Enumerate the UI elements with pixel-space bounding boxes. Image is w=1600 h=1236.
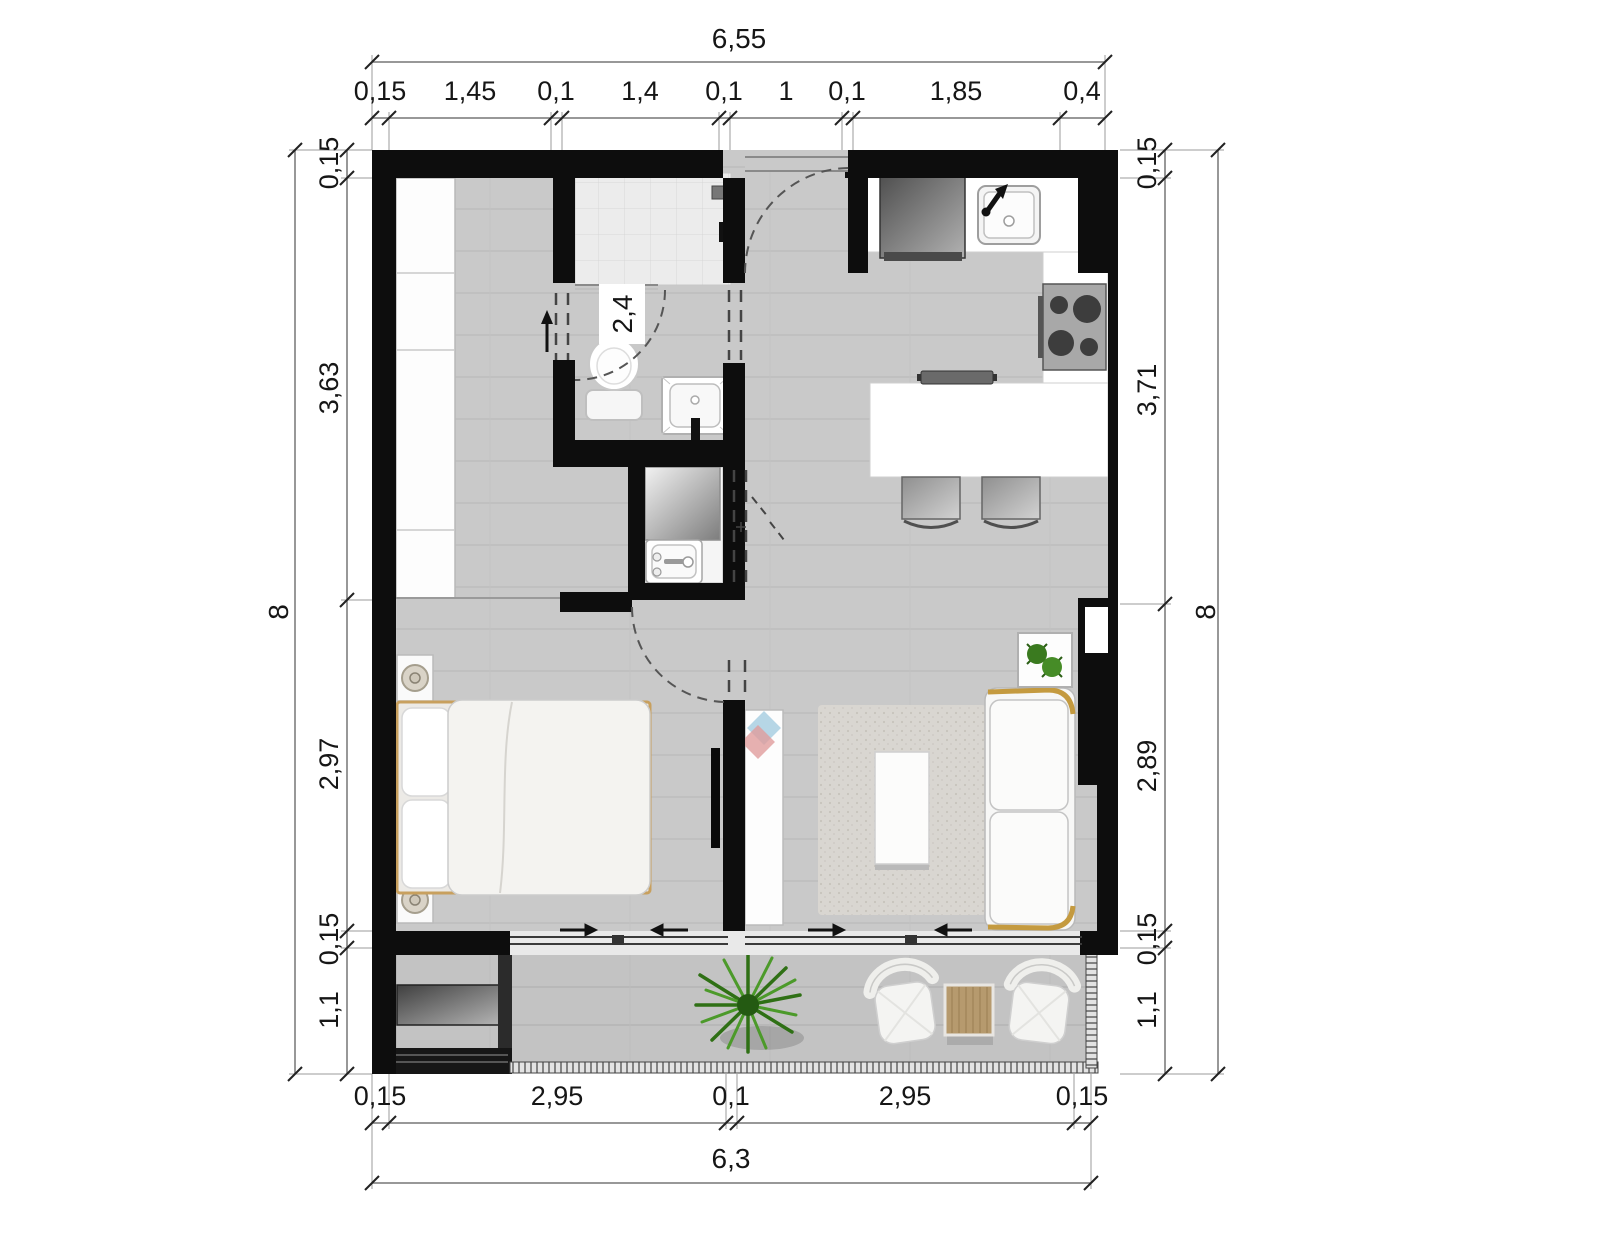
utility-closet [645,467,723,583]
refrigerator-handle [884,252,962,261]
dim-left-seg: 1,1 [314,991,344,1029]
dim-top-seg: 0,1 [705,76,743,106]
plant-stand-icon [1018,633,1072,687]
bathroom-wall-left-upper [553,178,575,283]
shower-floor-tiles [575,173,731,285]
dim-right-overall: 8 [1190,604,1221,620]
exterior-wall-slider-end [1080,931,1118,955]
dim-top-seg: 1,4 [621,76,659,106]
balcony-wall-left [372,948,396,1074]
double-bed-icon [397,700,650,895]
bedroom-balcony-wall [372,931,510,955]
washbasin-icon [662,377,728,442]
entry-threshold [745,150,848,172]
sliding-door-meeting-stile [612,935,624,945]
dim-bottom-seg: 0,15 [354,1081,407,1111]
cooktop-icon [1038,284,1106,370]
dim-bottom-seg: 2,95 [531,1081,584,1111]
utility-wall-left [628,467,645,600]
nightstand-icon [397,655,433,701]
mirror-panel [645,467,720,540]
bathroom-wall-right-upper [723,178,745,283]
sofa-icon [985,688,1075,930]
utility-wall-bottom [628,583,745,600]
kitchen-entry-wall [848,178,868,273]
exterior-wall-left [372,150,396,948]
dim-bottom-overall: 6,3 [712,1143,751,1174]
dim-bottom-seg: 2,95 [879,1081,932,1111]
balcony-railing [510,1062,1098,1073]
toilet-icon [586,338,642,420]
dim-top-seg: 0,4 [1063,76,1101,106]
sliding-door-meeting-stile [905,935,917,945]
bathroom-wall-bottom [553,440,745,467]
island-counter [870,383,1108,477]
exterior-wall-right [1108,273,1118,598]
dim-right-seg: 1,1 [1132,991,1162,1029]
dim-left-seg: 0,15 [314,137,344,190]
outdoor-side-table-icon [945,985,993,1045]
tv-cabinet [741,710,783,925]
dim-top-seg: 0,15 [354,76,407,106]
bedroom-living-partition [723,700,745,948]
dim-right-seg: 0,15 [1132,137,1162,190]
dim-bottom-seg: 0,15 [1056,1081,1109,1111]
dim-top-seg: 0,1 [828,76,866,106]
dim-top-seg: 0,1 [537,76,575,106]
tv-icon [711,748,720,848]
duvet [448,700,650,895]
dim-right-seg: 0,15 [1132,913,1162,966]
laundry-sink-icon [646,540,702,583]
dim-left-seg: 2,97 [314,738,344,791]
ceiling-height-label: 2,4 [607,295,638,334]
floor-plan-canvas: 6,55 0,15 1,45 0,1 1,4 0,1 1 0,1 1,85 0,… [0,0,1600,1236]
exterior-wall-top-right [845,150,1078,178]
dim-top-overall: 6,55 [712,23,767,54]
kitchen-sink-icon [978,184,1040,244]
dim-bottom-seg: 0,1 [712,1081,750,1111]
floor-plan-page: 6,55 0,15 1,45 0,1 1,4 0,1 1 0,1 1,85 0,… [0,0,1600,1236]
coffee-table-icon [875,752,929,870]
dim-left-overall: 8 [263,604,294,620]
cutting-board-icon [917,371,997,384]
balcony-divider [498,948,512,1064]
bedroom-wall-top [560,592,632,612]
bathroom-wall-left-lower [553,360,575,440]
bathroom-wall-right-mid [723,363,745,440]
ceiling-height-annotation: 2,4 [599,284,645,344]
exterior-wall-top-left [372,150,723,178]
dim-right-seg: 2,89 [1132,740,1162,793]
refrigerator-icon [880,174,965,258]
pillow-icon [402,800,450,888]
wall-niche [1085,607,1108,653]
exterior-wall-right-lower [1097,785,1118,931]
pillow-icon [402,708,450,796]
dim-top-seg: 1,85 [930,76,983,106]
balcony-railing [1086,948,1097,1068]
dim-right-seg: 3,71 [1132,364,1162,417]
dim-top-seg: 1 [778,76,793,106]
hall-wardrobe [396,178,455,598]
dim-left-seg: 0,15 [314,913,344,966]
ac-unit-icon [397,985,501,1025]
corner-column [1078,150,1118,273]
dim-top-seg: 1,45 [444,76,497,106]
dim-left-seg: 3,63 [314,362,344,415]
